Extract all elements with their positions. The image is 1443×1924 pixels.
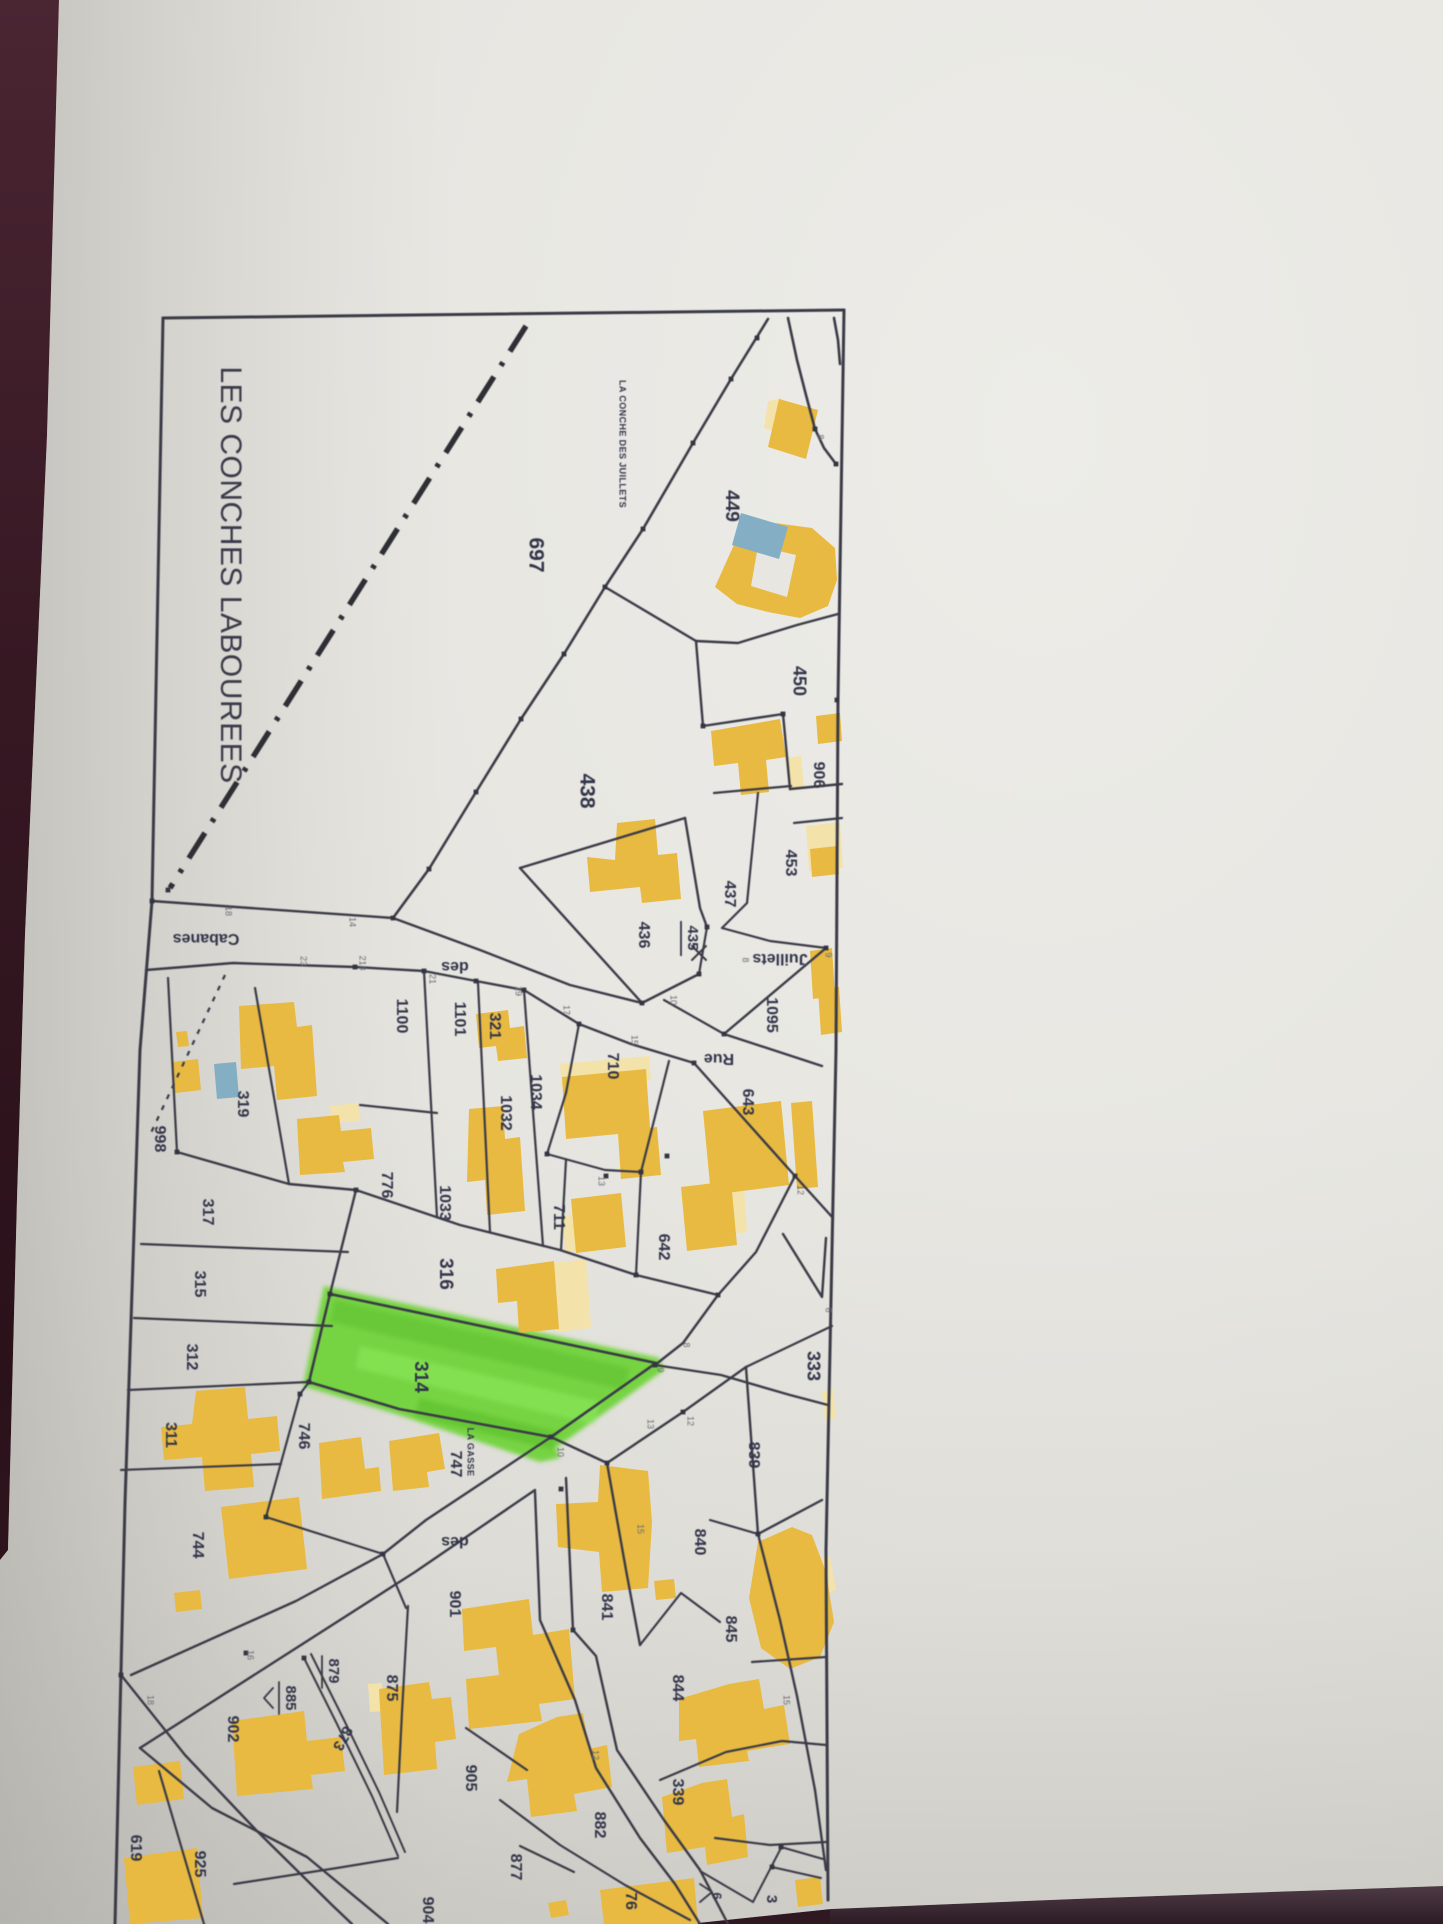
svg-text:619: 619 xyxy=(127,1835,144,1862)
svg-text:885: 885 xyxy=(282,1685,299,1710)
svg-text:697: 697 xyxy=(524,537,547,572)
svg-text:710: 710 xyxy=(604,1053,621,1080)
svg-text:des: des xyxy=(441,958,469,975)
svg-text:879: 879 xyxy=(325,1658,342,1683)
svg-text:76: 76 xyxy=(622,1892,639,1910)
svg-text:16: 16 xyxy=(246,1650,256,1660)
svg-text:904: 904 xyxy=(419,1897,436,1924)
svg-text:435: 435 xyxy=(684,925,701,950)
svg-text:19: 19 xyxy=(514,986,524,996)
svg-text:998: 998 xyxy=(151,1126,168,1153)
svg-text:LA CONCHE DES JUILLETS: LA CONCHE DES JUILLETS xyxy=(618,380,628,508)
svg-text:3: 3 xyxy=(763,1895,780,1903)
svg-text:905: 905 xyxy=(462,1765,479,1792)
svg-text:746: 746 xyxy=(295,1423,312,1450)
svg-text:8: 8 xyxy=(682,1342,692,1347)
svg-text:LA GASSE: LA GASSE xyxy=(466,1428,476,1477)
svg-text:218: 218 xyxy=(358,955,368,970)
svg-text:17: 17 xyxy=(562,1005,572,1015)
svg-text:Juillets: Juillets xyxy=(752,950,807,967)
svg-text:10: 10 xyxy=(669,995,679,1005)
svg-text:12: 12 xyxy=(591,1750,601,1760)
svg-text:Rue: Rue xyxy=(704,1050,734,1067)
svg-text:9: 9 xyxy=(824,952,834,957)
svg-text:747: 747 xyxy=(447,1451,464,1478)
svg-text:321: 321 xyxy=(486,1013,503,1040)
svg-text:15: 15 xyxy=(630,1035,640,1045)
svg-text:902: 902 xyxy=(224,1716,241,1743)
svg-text:1095: 1095 xyxy=(763,997,780,1033)
svg-text:314: 314 xyxy=(410,1361,431,1393)
svg-text:18: 18 xyxy=(146,1695,156,1705)
svg-text:1032: 1032 xyxy=(497,1095,514,1131)
svg-text:449: 449 xyxy=(721,490,742,522)
svg-text:Cabanes: Cabanes xyxy=(173,930,240,947)
svg-text:450: 450 xyxy=(789,666,809,696)
svg-text:875: 875 xyxy=(383,1675,400,1702)
svg-text:6: 6 xyxy=(710,1892,725,1899)
svg-text:316: 316 xyxy=(435,1258,456,1290)
svg-text:845: 845 xyxy=(722,1616,739,1643)
svg-text:LES CONCHES LABOUREES: LES CONCHES LABOUREES xyxy=(214,366,247,783)
svg-text:711: 711 xyxy=(550,1204,567,1230)
svg-text:312: 312 xyxy=(183,1344,200,1371)
svg-text:841: 841 xyxy=(598,1594,615,1621)
svg-text:12: 12 xyxy=(796,1185,806,1195)
svg-text:643: 643 xyxy=(739,1089,756,1116)
svg-text:840: 840 xyxy=(691,1529,708,1556)
svg-text:15: 15 xyxy=(636,1524,646,1534)
svg-text:882: 882 xyxy=(591,1812,608,1839)
svg-text:317: 317 xyxy=(199,1199,216,1226)
svg-text:339: 339 xyxy=(669,1779,686,1806)
svg-text:333: 333 xyxy=(803,1351,823,1381)
svg-text:1101: 1101 xyxy=(451,1002,468,1037)
svg-text:453: 453 xyxy=(782,850,799,877)
svg-text:1100: 1100 xyxy=(393,999,410,1034)
svg-text:839: 839 xyxy=(745,1442,762,1469)
svg-text:23: 23 xyxy=(299,956,309,966)
svg-text:1034: 1034 xyxy=(527,1074,544,1110)
svg-text:14: 14 xyxy=(348,917,358,927)
svg-text:906: 906 xyxy=(810,762,827,789)
svg-text:12: 12 xyxy=(686,1416,696,1426)
svg-text:844: 844 xyxy=(669,1675,686,1702)
svg-text:744: 744 xyxy=(189,1532,206,1559)
svg-text:21: 21 xyxy=(428,974,438,984)
svg-text:642: 642 xyxy=(655,1234,672,1261)
svg-text:18: 18 xyxy=(224,906,234,916)
svg-text:436: 436 xyxy=(635,922,652,949)
svg-text:13: 13 xyxy=(597,1176,607,1186)
svg-text:901: 901 xyxy=(446,1591,463,1618)
svg-text:15: 15 xyxy=(782,1695,792,1705)
svg-text:8: 8 xyxy=(741,957,751,962)
svg-text:776: 776 xyxy=(378,1172,395,1199)
svg-text:319: 319 xyxy=(234,1091,251,1118)
svg-text:13: 13 xyxy=(646,1419,656,1429)
svg-text:8: 8 xyxy=(816,434,826,439)
svg-text:925: 925 xyxy=(191,1851,208,1878)
svg-text:877: 877 xyxy=(507,1854,524,1881)
svg-text:437: 437 xyxy=(721,881,738,908)
svg-text:311: 311 xyxy=(162,1422,179,1448)
svg-text:1033: 1033 xyxy=(436,1185,453,1221)
svg-text:6: 6 xyxy=(824,1307,834,1312)
svg-text:315: 315 xyxy=(191,1271,208,1298)
svg-text:438: 438 xyxy=(575,773,598,808)
svg-text:10: 10 xyxy=(556,1447,566,1457)
svg-text:des: des xyxy=(441,1533,469,1550)
svg-text:9: 9 xyxy=(656,1367,666,1372)
